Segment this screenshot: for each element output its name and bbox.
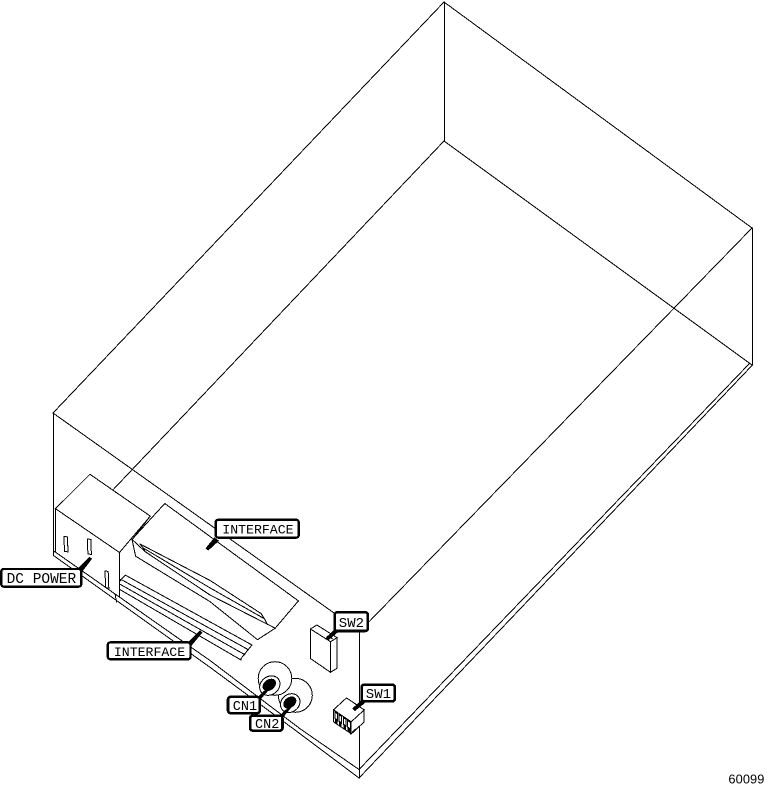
svg-text:INTERFACE: INTERFACE	[114, 645, 185, 660]
svg-text:SW2: SW2	[339, 616, 364, 632]
svg-text:SW1: SW1	[366, 687, 391, 703]
svg-text:CN2: CN2	[255, 718, 279, 733]
svg-text:CN1: CN1	[233, 700, 257, 715]
svg-text:60099: 60099	[728, 772, 764, 787]
svg-text:INTERFACE: INTERFACE	[222, 523, 293, 538]
svg-text:DC POWER: DC POWER	[7, 572, 77, 588]
